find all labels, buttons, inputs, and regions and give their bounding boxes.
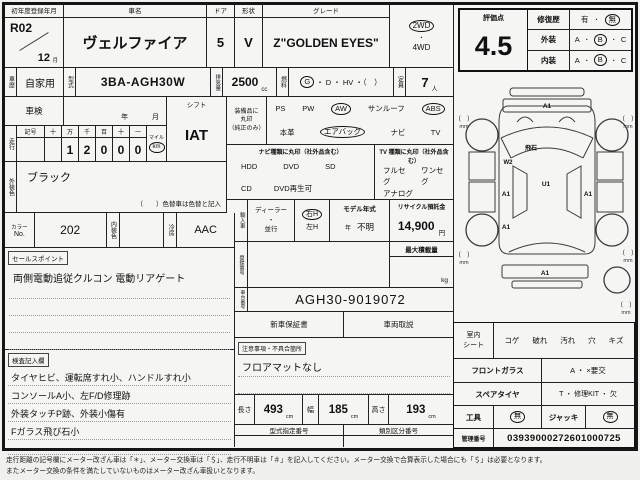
seat-option: キズ	[609, 335, 624, 346]
equipment-item: ナビ	[390, 127, 405, 138]
mark-left-slide-scratch: A1	[502, 191, 511, 198]
grade-value: Z"GOLDEN EYES"	[263, 18, 389, 67]
interior-dot: ・	[582, 56, 592, 65]
equipment-label-3: （純正のみ）	[228, 125, 264, 133]
tread-mm-spare: mm	[621, 310, 631, 316]
tread-paren-spare: ( )	[621, 301, 632, 308]
chassis-value: AGH30-9019072	[248, 288, 453, 311]
sales-point-line	[9, 332, 230, 333]
length-cell: 493 cm	[255, 395, 303, 424]
jack-value-cell: 無	[586, 406, 634, 428]
row-title: 初年度登録年月 R02 12 月 車名 ヴェルファイア ドア 5 形状 V グレ…	[5, 5, 453, 68]
interior-grade-row: 内装 A ・ B ・ C	[528, 51, 631, 70]
first-registration-value: R02 12 月	[5, 18, 63, 67]
recycle-cell: リサイクル預託金 14,900 円	[390, 200, 453, 241]
max-load-cell: 最大積載量 kg	[390, 242, 453, 287]
mileage-label: 走行	[5, 126, 17, 161]
exterior-grade-label: 外装	[528, 30, 570, 49]
mileage-digit: 2	[79, 138, 96, 161]
import-dot: ・	[268, 216, 275, 226]
rear-window	[509, 243, 585, 252]
nav-types: ナビ種類に丸印（社外品含む） HDD DVD SD CD DVD再生可	[227, 145, 375, 199]
mileage-digit	[45, 138, 62, 161]
capacity-value: 7	[421, 75, 428, 90]
tools-label: 工具	[454, 406, 494, 428]
height-unit: cm	[428, 414, 435, 420]
drive-4wd: 4WD	[413, 43, 431, 52]
exterior-b-circled: B	[594, 34, 607, 46]
car-name-cell: 車名 ヴェルファイア	[64, 5, 207, 67]
equipment-grid: PS PW AW サンルーフ ABS 本革 エアバッグ ナビ TV	[267, 97, 453, 145]
km-circled: km	[149, 142, 165, 153]
mileage-digit: 0	[113, 138, 130, 161]
color-no-label-cell: カラー No.	[5, 213, 35, 247]
door-label: ドア	[207, 5, 234, 18]
rear-bumper-lower	[512, 281, 582, 288]
fuel-options: ・ D ・ HV ・（ ）	[316, 77, 381, 88]
drive-2wd-circled: 2WD	[409, 20, 435, 33]
nav-row-2: CD DVD再生可	[227, 178, 374, 200]
type-numbers-headers: 型式指定番号 類別区分番号	[235, 425, 453, 436]
import-label: 輸入車	[235, 200, 248, 241]
tools-value-cell: 無	[494, 406, 542, 428]
mileage-digit: 0	[96, 138, 113, 161]
notes-text: フロアマットなし	[238, 358, 450, 377]
tv-types-header: TV 種類に丸印（社外品含む）	[375, 145, 453, 165]
left-front-door-panel	[469, 152, 495, 180]
grade-label: グレード	[263, 5, 389, 18]
repair-history-label: 修復歴	[528, 10, 570, 29]
tv-item: ワンセグ	[421, 165, 445, 187]
front-left-wheel	[466, 119, 498, 151]
mileage-header: 百	[96, 126, 113, 137]
displacement-unit: cc	[261, 87, 267, 93]
front-glass-row: フロントガラス A ・ ×要交	[454, 359, 634, 383]
max-load-label: 最大積載量	[390, 242, 453, 257]
interior-grade-label: 内装	[528, 51, 570, 70]
seat-option: コゲ	[504, 335, 519, 346]
exterior-grade-row: 外装 A ・ B ・ C	[528, 30, 631, 50]
displacement-value: 2500	[232, 75, 259, 89]
row-spec: 車歴 自家用 型式 3BA-AGH30W 排気量 2500 cc 燃料 G ・ …	[5, 68, 453, 97]
max-load-unit: kg	[441, 277, 448, 284]
nav-item: HDD	[241, 162, 257, 171]
exterior-color-value: ブラック	[27, 169, 71, 185]
tread-paren-rear-right: ( )	[623, 249, 634, 256]
shaken-row: 車検 年 月	[5, 97, 167, 126]
control-number-label: 管理番号	[454, 429, 494, 447]
sales-point-section: セールスポイント 両側電動追従クルコン 電動リアゲート	[5, 248, 235, 350]
repair-yes: 有	[581, 14, 589, 25]
control-number-row: 管理番号 03939000272601000725	[454, 429, 634, 447]
history-label: 車歴	[5, 68, 17, 96]
equipment-label-cell: 装備品に 丸印 （純正のみ）	[227, 97, 267, 145]
spare-tire-row: スペアタイヤ T ・ 修理KIT ・ 欠	[454, 383, 634, 406]
fuel-cell: G ・ D ・ HV ・（ ）	[289, 68, 394, 96]
mileage-header: 十	[113, 126, 130, 137]
door-cell: ドア 5	[207, 5, 235, 67]
model-year-cell: モデル年式 年 不明	[330, 200, 390, 241]
shift-cell: シフト IAT	[167, 97, 227, 162]
tread-paren-front-left: ( )	[459, 115, 470, 122]
rear-right-wheel	[596, 214, 628, 246]
dimensions-row: 長さ 493 cm 幅 185 cm 高さ 193 cm	[235, 395, 453, 425]
front-seats	[517, 117, 575, 122]
mileage-unit-cell: マイル km	[147, 126, 166, 161]
right-front-door-panel	[597, 152, 623, 180]
equipment-item: PW	[302, 104, 314, 113]
handle-cell: 右H 左H	[295, 200, 330, 241]
model-code-value: 3BA-AGH30W	[76, 68, 211, 96]
exterior-a: A	[575, 35, 580, 44]
height-label: 高さ	[369, 395, 389, 424]
interior-grade-value: A ・ B ・ C	[570, 51, 631, 70]
exterior-color-label: 外装色	[5, 162, 17, 212]
capacity-cell: 7 人	[406, 68, 453, 96]
width-label: 幅	[303, 395, 319, 424]
capacity-label: 定員	[394, 68, 406, 96]
handle-right-circled: 右H	[302, 209, 322, 221]
tv-item: アナログ	[383, 188, 413, 199]
equipment-item: TV	[431, 128, 441, 137]
shaken-value-cell: 年 月	[64, 97, 166, 125]
designation-number-value	[235, 436, 344, 447]
mark-right-slide-scratch: A1	[584, 191, 593, 198]
warranty-label: 新車保証書	[235, 312, 344, 337]
footer-line-1: 走行距離の記号欄にメーター改ざん車は「＊」、メーター交換車は「＄」、走行不明車は…	[6, 456, 636, 467]
capacity-unit: 人	[432, 84, 438, 93]
color-no-value: 202	[35, 213, 107, 247]
tv-row-2: アナログ	[375, 187, 453, 199]
interior-b-circled: B	[594, 54, 607, 66]
color-no-label-2: No.	[14, 231, 25, 238]
drive-dot: ・	[416, 33, 426, 42]
type-numbers-section: 型式指定番号 類別区分番号	[235, 425, 453, 447]
equipment-row-2: 本革 エアバッグ ナビ TV	[267, 121, 453, 145]
sheet-frame: 初年度登録年月 R02 12 月 車名 ヴェルファイア ドア 5 形状 V グレ…	[2, 2, 638, 451]
inspection-note-line	[8, 454, 231, 455]
inspection-note-line: タイヤヒビ、運転席すれ小、ハンドルすれ小	[8, 370, 231, 386]
nav-tv-section: ナビ種類に丸印（社外品含む） HDD DVD SD CD DVD再生可 TV 種…	[227, 145, 453, 200]
equipment-item: 本革	[280, 127, 295, 138]
seat-label: 室内 シート	[454, 323, 494, 358]
car-name-value: ヴェルファイア	[64, 18, 206, 67]
front-glass-label: フロントガラス	[454, 359, 542, 382]
tv-types: TV 種類に丸印（社外品含む） フルセグ ワンセグ アナログ	[375, 145, 453, 199]
sales-point-text: 両側電動追従クルコン 電動リアゲート	[5, 266, 234, 285]
mark-roof-dent: U1	[542, 181, 551, 188]
repair-history-row: 修復歴 有 ・ 無	[528, 10, 631, 30]
interior-c: C	[621, 56, 626, 65]
auction-sheet-page: { "top": { "reg": { "label": "初年度登録年月", …	[0, 0, 640, 480]
height-value: 193	[406, 404, 425, 416]
reg-year: R02	[10, 21, 32, 35]
equipment-row-1: PS PW AW サンルーフ ABS	[267, 97, 453, 121]
model-year-label: モデル年式	[330, 200, 389, 213]
rating-rows: 修復歴 有 ・ 無 外装 A ・ B ・ C 内装	[528, 10, 631, 70]
shift-label: シフト	[167, 97, 226, 109]
cabin-panels	[513, 166, 581, 218]
mark-windshield-stone-chip: 飛石	[524, 144, 537, 152]
docs-row: 新車保証書 車両取説	[235, 312, 453, 338]
tread-mm-rear-left: mm	[459, 260, 469, 266]
registration-label: 登録番号	[235, 242, 248, 287]
rear-left-wheel	[466, 214, 498, 246]
exterior-dot: ・	[582, 35, 592, 44]
equipment-item-abs-circled: ABS	[422, 103, 445, 115]
nav-types-header: ナビ種類に丸印（社外品含む）	[227, 145, 374, 156]
classification-number-value	[344, 436, 453, 447]
interior-color-label: 内装色	[107, 213, 120, 247]
jack-none-circled: 無	[603, 411, 618, 423]
cooling-label: 冷房	[164, 213, 177, 247]
displacement-label: 排気量	[211, 68, 223, 96]
mileage-digit: 0	[130, 138, 147, 161]
chassis-row: 車台番号 AGH30-9019072	[235, 288, 453, 312]
repair-history-value: 有 ・ 無	[570, 10, 631, 29]
height-cell: 193 cm	[389, 395, 453, 424]
classification-number-label: 類別区分番号	[344, 425, 453, 435]
sales-point-line	[9, 298, 230, 299]
nav-item: CD	[241, 184, 252, 193]
shift-value: IAT	[167, 109, 226, 161]
grade-cell: グレード Z"GOLDEN EYES"	[263, 5, 390, 67]
history-value: 自家用	[17, 68, 64, 96]
sales-point-tag: セールスポイント	[8, 251, 68, 265]
mileage-header: 千	[79, 126, 96, 137]
nav-item: SD	[325, 162, 335, 171]
model-year-unit: 年	[345, 223, 351, 232]
roof-rack-bar	[510, 88, 584, 96]
handle-left: 左H	[306, 222, 318, 232]
import-row: 輸入車 ディーラー ・ 並行 右H 左H モデル年式 年 不明 リサイクル預託金…	[235, 200, 453, 242]
tread-mm-front-right: mm	[623, 124, 633, 130]
inspection-notes-section: 検査記入欄 タイヤヒビ、運転席すれ小、ハンドルすれ小 コンソールA小、左F/D修…	[5, 350, 235, 447]
rating-box: 評価点 4.5 修復歴 有 ・ 無 外装 A ・ B ・ C	[458, 8, 633, 72]
seat-option: 穴	[588, 335, 596, 346]
tv-item: フルセグ	[383, 165, 407, 187]
spare-tire-label: スペアタイヤ	[454, 383, 542, 405]
car-diagram-svg: A1 飛石 W2 U1 A1 A1 A1 A1 ( ) mm ( ) mm ( …	[455, 82, 637, 320]
mark-front-bumper: A1	[543, 103, 552, 110]
notes-line	[238, 393, 450, 394]
exterior-c: C	[621, 35, 626, 44]
car-name-label: 車名	[64, 5, 206, 18]
recycle-value-wrap: 14,900 円	[390, 211, 453, 241]
mile-label: マイル	[149, 134, 164, 141]
nav-row-1: HDD DVD SD	[227, 156, 374, 178]
tv-row-1: フルセグ ワンセグ	[375, 165, 453, 187]
model-year-value: 不明	[357, 221, 374, 233]
first-registration-cell: 初年度登録年月 R02 12 月	[5, 5, 64, 67]
equipment-item-airbag-circled: エアバッグ	[320, 126, 365, 138]
equipment-label-2: 丸印	[240, 116, 252, 124]
car-diagram: A1 飛石 W2 U1 A1 A1 A1 A1 ( ) mm ( ) mm ( …	[455, 82, 637, 320]
exterior-color-cell: ブラック （ ）色替車は色替と記入	[17, 162, 226, 212]
tools-row: 工具 無 ジャッキ 無	[454, 406, 634, 429]
inspection-note-line: コンソールA小、左F/D修理跡	[8, 386, 231, 404]
color-no-label-1: カラー	[11, 223, 28, 231]
mileage-headers: 記号 十 万 千 百 十 一	[17, 126, 147, 138]
seat-row: 室内 シート コゲ 破れ 汚れ 穴 キズ	[454, 323, 634, 359]
mileage-header: 一	[130, 126, 147, 137]
auction-sheet: 初年度登録年月 R02 12 月 車名 ヴェルファイア ドア 5 形状 V グレ…	[0, 0, 640, 480]
shape-value: V	[235, 18, 262, 67]
score-cell: 評価点 4.5	[460, 10, 528, 70]
mark-left-quarter-scratch: A1	[502, 224, 511, 231]
tread-paren-front-right: ( )	[623, 115, 634, 122]
exterior-color-row: 外装色 ブラック （ ）色替車は色替と記入	[5, 162, 227, 213]
score-label: 評価点	[460, 10, 527, 23]
equipment-item: PS	[275, 104, 285, 113]
shaken-year-unit: 年	[121, 112, 128, 122]
first-registration-label: 初年度登録年月	[5, 5, 63, 18]
fuel-g-circled: G	[300, 76, 314, 88]
footer-disclaimer: 走行距離の記号欄にメーター改ざん車は「＊」、メーター交換車は「＄」、走行不明車は…	[6, 456, 636, 477]
seat-option: 汚れ	[560, 335, 575, 346]
repair-no-circled: 無	[605, 14, 621, 26]
equipment-label-1: 装備品に	[234, 108, 258, 116]
mileage-header: 万	[62, 126, 79, 137]
mileage-row: 走行 記号 十 万 千 百 十 一 1 2 0 0 0 マイル	[5, 126, 167, 162]
model-code-label: 型式	[64, 68, 76, 96]
footer-line-2: またメーター交換の条件を満たしていないものはメーター改ざん車扱いとなります。	[6, 467, 636, 478]
import-dealer: ディーラー	[255, 206, 287, 216]
width-unit: cm	[351, 414, 358, 420]
inspection-note-line: 外装タッチP跡、外装小傷有	[8, 404, 231, 422]
exterior-dot: ・	[609, 35, 619, 44]
seat-label-2: シート	[463, 341, 484, 351]
mileage-digit	[17, 138, 45, 161]
drive-cell: 2WD ・ 4WD	[390, 5, 453, 67]
seat-option: 破れ	[532, 335, 547, 346]
mileage-digits: 1 2 0 0 0	[17, 138, 147, 161]
inspection-notes-tag: 検査記入欄	[8, 353, 49, 367]
registration-value	[248, 242, 390, 287]
spare-tire	[604, 267, 630, 293]
reg-month: 12	[38, 52, 50, 64]
length-value: 493	[264, 404, 283, 416]
shaken-month-unit: 月	[152, 112, 159, 122]
seat-options: コゲ 破れ 汚れ 穴 キズ	[494, 323, 634, 358]
shaken-label: 車検	[5, 97, 64, 125]
exterior-grade-value: A ・ B ・ C	[570, 30, 631, 49]
width-value: 185	[329, 404, 348, 416]
door-value: 5	[207, 18, 234, 67]
repair-dot: ・	[591, 15, 601, 24]
seat-label-1: 室内	[467, 331, 481, 341]
notes-tag: 注意事項・不具合箇所	[238, 342, 306, 355]
interior-dot: ・	[609, 56, 619, 65]
mileage-table: 記号 十 万 千 百 十 一 1 2 0 0 0	[17, 126, 147, 161]
mileage-header: 記号	[17, 126, 45, 137]
nav-item: DVD再生可	[274, 183, 312, 194]
chassis-label: 車台番号	[235, 288, 248, 311]
length-unit: cm	[286, 414, 293, 420]
tread-paren-rear-left: ( )	[459, 251, 470, 258]
import-type-cell: ディーラー ・ 並行	[248, 200, 295, 241]
exterior-color-note: （ ）色替車は色替と記入	[137, 198, 222, 208]
manual-label: 車両取説	[344, 312, 453, 337]
import-parallel: 並行	[265, 225, 278, 235]
interior-a: A	[575, 56, 580, 65]
equipment-item-aw-circled: AW	[331, 103, 351, 115]
front-glass-value: A ・ ×要交	[542, 359, 634, 382]
recycle-label: リサイクル預託金	[390, 200, 453, 211]
right-slide-door-panel	[597, 182, 623, 212]
registration-row: 登録番号 最大積載量 kg	[235, 242, 453, 288]
mileage-header: 十	[45, 126, 62, 137]
width-cell: 185 cm	[319, 395, 369, 424]
sales-point-line	[9, 315, 230, 316]
jack-label: ジャッキ	[542, 406, 586, 428]
nav-item: DVD	[283, 162, 299, 171]
tread-mm-rear-right: mm	[623, 258, 633, 264]
cooling-value: AAC	[177, 213, 234, 247]
mileage-digit: 1	[62, 138, 79, 161]
tools-none-circled: 無	[510, 411, 525, 423]
reg-month-unit: 月	[52, 56, 58, 64]
type-numbers-values	[235, 436, 453, 447]
displacement-cell: 2500 cc	[223, 68, 277, 96]
equipment-item: サンルーフ	[368, 103, 405, 114]
spare-tire-value: T ・ 修理KIT ・ 欠	[542, 383, 634, 405]
inspection-note-line: Fガラス飛び石小	[8, 422, 231, 440]
mark-left-door-wave: W2	[504, 160, 514, 166]
fuel-label: 燃料	[277, 68, 289, 96]
interior-color-value	[120, 213, 165, 247]
score-value: 4.5	[460, 23, 527, 70]
shape-cell: 形状 V	[235, 5, 263, 67]
tread-mm-front-left: mm	[459, 124, 469, 130]
color-no-row: カラー No. 202 内装色 冷房 AAC	[5, 213, 235, 248]
mark-rear-bumper-scratch: A1	[541, 270, 550, 277]
condition-table: 室内 シート コゲ 破れ 汚れ 穴 キズ フロントガラス A ・ ×要交 スペア…	[453, 322, 635, 448]
designation-number-label: 型式指定番号	[235, 425, 344, 435]
recycle-unit: 円	[439, 227, 446, 237]
shape-label: 形状	[235, 5, 262, 18]
model-year-value-wrap: 年 不明	[330, 213, 389, 241]
left-slide-door-panel	[469, 182, 495, 212]
notes-section: 注意事項・不具合箇所 フロアマットなし	[235, 338, 453, 395]
recycle-value: 14,900	[398, 219, 435, 233]
control-number-value: 03939000272601000725	[494, 429, 634, 447]
length-label: 長さ	[235, 395, 255, 424]
windshield	[501, 127, 593, 158]
